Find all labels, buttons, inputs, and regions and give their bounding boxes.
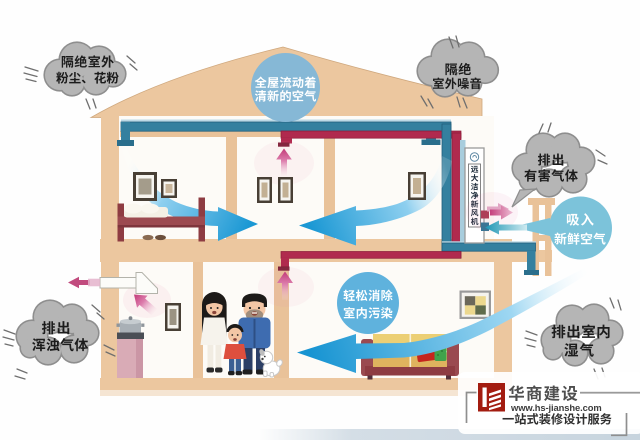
svg-text:www.hs-jianshe.com: www.hs-jianshe.com (510, 402, 602, 413)
